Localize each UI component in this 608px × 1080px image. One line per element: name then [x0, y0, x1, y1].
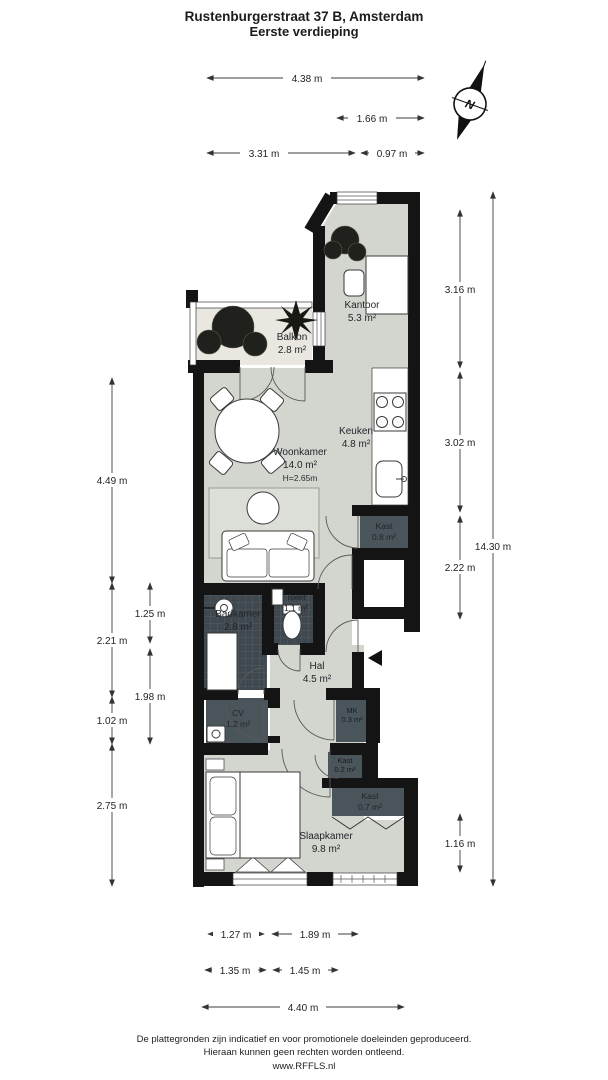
svg-text:4.49 m: 4.49 m [97, 476, 128, 487]
website-url: www.RFFLS.nl [0, 1060, 608, 1073]
cv-area: 1.2 m² [226, 719, 250, 729]
svg-text:1.45 m: 1.45 m [290, 966, 321, 977]
svg-text:4.40 m: 4.40 m [288, 1003, 319, 1014]
dim-right-keuken: 3.02 m [437, 372, 484, 512]
dim-top-total: 4.38 m [207, 71, 424, 85]
kast-klein-area: 0.2 m² [334, 765, 356, 774]
svg-text:2.75 m: 2.75 m [97, 801, 128, 812]
dim-right-kast-zone: 2.22 m [437, 516, 484, 619]
dim-top-small: 0.97 m [361, 146, 424, 160]
svg-text:3.31 m: 3.31 m [249, 149, 280, 160]
svg-text:1.02 m: 1.02 m [97, 716, 128, 727]
disclaimer-line2: Hieraan kunnen geen rechten worden ontle… [0, 1046, 608, 1059]
cv-boiler [207, 726, 225, 742]
dim-top-balkon: 3.31 m [207, 146, 355, 160]
kast-slaapkamer-area: 0.7 m² [358, 802, 382, 812]
toilet-label: Toilet [286, 592, 306, 602]
kantoor-area: 5.3 m² [348, 313, 377, 324]
svg-text:14.30 m: 14.30 m [475, 542, 511, 553]
mk-area: 0.3 m² [341, 715, 363, 724]
slaapkamer-area: 9.8 m² [312, 844, 341, 855]
dim-bottom-row2-left: 1.35 m [205, 963, 266, 977]
badkamer-area: 2.8 m² [224, 622, 253, 633]
bed [206, 759, 300, 870]
dim-bottom-row1-right: 1.89 m [272, 927, 358, 941]
dim-right-kast-bottom: 1.16 m [437, 814, 484, 872]
dim-right-kantoor: 3.16 m [437, 210, 484, 368]
toilet-area: 1.1 m² [284, 603, 308, 613]
dim-left-woonkamer: 4.49 m [89, 378, 136, 583]
dim-top-kantoor: 1.66 m [337, 111, 424, 125]
shower [207, 633, 237, 690]
svg-text:3.02 m: 3.02 m [445, 438, 476, 449]
dim-right-total: 14.30 m [466, 192, 520, 886]
entrance-arrow [368, 650, 382, 666]
desk-chair [344, 270, 364, 296]
dim-left-cv-zone: 1.02 m [89, 697, 136, 744]
slaapkamer-window [333, 873, 397, 885]
svg-text:2.22 m: 2.22 m [445, 563, 476, 574]
dim-left-badkamer-zone: 2.21 m [89, 583, 136, 697]
balkon-area: 2.8 m² [278, 345, 307, 356]
floorplan-page: Rustenburgerstraat 37 B, Amsterdam Eerst… [0, 0, 608, 1080]
kast-klein-label: Kast [337, 756, 353, 765]
svg-text:1.27 m: 1.27 m [221, 930, 252, 941]
dim-left-hal-zone: 1.98 m [127, 649, 174, 744]
svg-text:1.98 m: 1.98 m [135, 692, 166, 703]
dim-bottom-row2-right: 1.45 m [273, 963, 338, 977]
disclaimer-footer: De plattegronden zijn indicatief en voor… [0, 1033, 608, 1073]
slaapkamer-label: Slaapkamer [299, 831, 353, 842]
compass-rose: N [439, 54, 503, 146]
hal-label: Hal [309, 661, 324, 672]
dim-left-slaapkamer: 2.75 m [89, 744, 136, 886]
woonkamer-area: 14.0 m² [283, 460, 318, 471]
disclaimer-line1: De plattegronden zijn indicatief en voor… [0, 1033, 608, 1046]
balkon-label: Balkon [277, 332, 308, 343]
stove [374, 393, 406, 431]
stairwell-void [364, 560, 404, 607]
floorplan-drawing: Kantoor 5.3 m² Balkon 2.8 m² Woonkamer 1… [0, 0, 608, 1080]
kast-slaapkamer-label: Kast [361, 791, 379, 801]
dim-bottom-total: 4.40 m [202, 1000, 404, 1014]
balkon-kantoor-window [313, 312, 325, 346]
badkamer-label: Badkamer [215, 609, 261, 620]
mk-label: MK [346, 706, 357, 715]
svg-text:3.16 m: 3.16 m [445, 285, 476, 296]
kantoor-window [337, 192, 377, 204]
svg-text:1.66 m: 1.66 m [357, 114, 388, 125]
hal-area: 4.5 m² [303, 674, 332, 685]
side-table [247, 492, 279, 524]
keuken-area: 4.8 m² [342, 439, 371, 450]
kitchen-sink [376, 461, 407, 497]
sofa [222, 531, 314, 581]
svg-text:4.38 m: 4.38 m [292, 74, 323, 85]
svg-text:1.35 m: 1.35 m [220, 966, 251, 977]
kantoor-label: Kantoor [344, 300, 380, 311]
keuken-label: Keuken [339, 426, 373, 437]
svg-text:0.97 m: 0.97 m [377, 149, 408, 160]
slaapkamer-floor-right [330, 820, 406, 874]
svg-text:1.25 m: 1.25 m [135, 609, 166, 620]
nightstand-bottom [206, 859, 224, 870]
svg-text:1.16 m: 1.16 m [445, 839, 476, 850]
nightstand-top [206, 759, 224, 770]
woonkamer-label: Woonkamer [273, 447, 327, 458]
kast-keuken-area: 0.8 m² [372, 532, 396, 542]
woonkamer-ceiling-height: H=2.65m [283, 473, 318, 483]
dim-bottom-row1-left: 1.27 m [208, 927, 264, 941]
kast-keuken-label: Kast [375, 521, 393, 531]
cv-label: CV [232, 708, 244, 718]
svg-text:1.89 m: 1.89 m [300, 930, 331, 941]
svg-text:2.21 m: 2.21 m [97, 636, 128, 647]
